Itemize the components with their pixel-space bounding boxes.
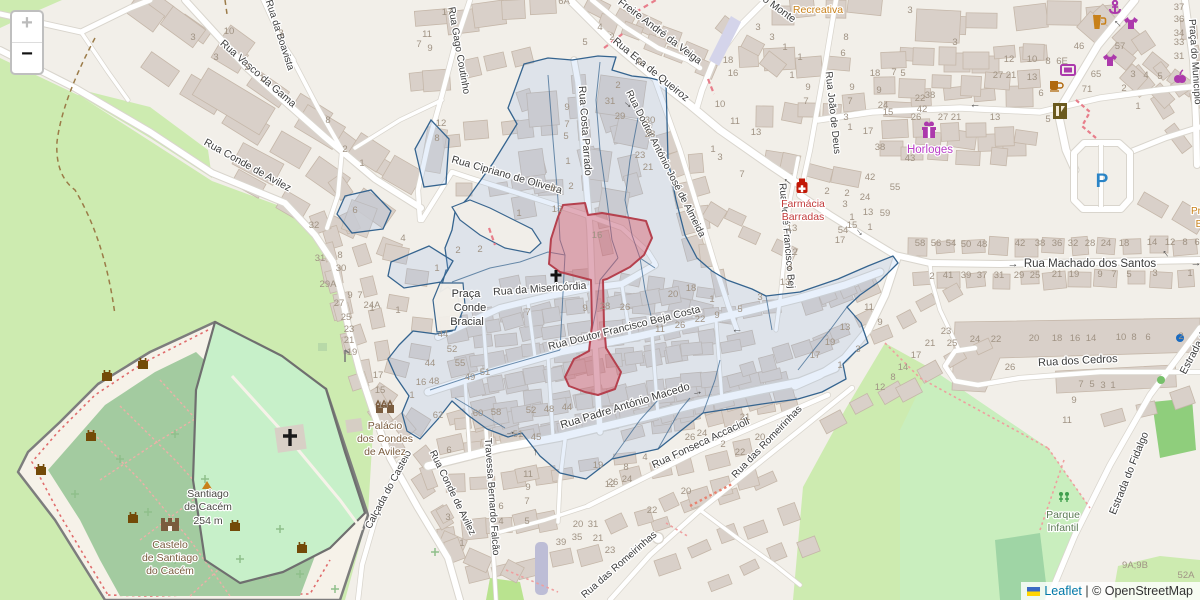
svg-text:Recreativa: Recreativa (793, 4, 843, 16)
svg-text:Bracial: Bracial (450, 316, 484, 328)
svg-text:31: 31 (588, 519, 599, 530)
svg-text:1: 1 (837, 360, 842, 371)
svg-text:44: 44 (425, 358, 436, 369)
svg-text:2: 2 (244, 62, 249, 73)
svg-text:29: 29 (1014, 270, 1025, 281)
svg-text:Conde: Conde (454, 302, 486, 314)
svg-text:1: 1 (797, 52, 802, 63)
svg-text:27: 27 (993, 70, 1004, 81)
svg-text:11: 11 (1062, 415, 1072, 426)
svg-text:17: 17 (863, 126, 874, 137)
svg-text:1: 1 (359, 158, 364, 169)
svg-text:16: 16 (1070, 333, 1081, 344)
svg-text:54: 54 (838, 225, 849, 236)
svg-text:17: 17 (911, 350, 922, 361)
svg-text:19: 19 (347, 347, 358, 358)
svg-text:21: 21 (925, 338, 936, 349)
svg-text:2: 2 (1178, 331, 1183, 342)
svg-text:27: 27 (334, 298, 345, 309)
svg-text:7: 7 (803, 96, 808, 107)
svg-text:16: 16 (728, 68, 739, 79)
svg-text:9: 9 (849, 82, 854, 93)
svg-text:13: 13 (751, 127, 762, 138)
svg-text:1: 1 (409, 390, 414, 401)
svg-text:2: 2 (568, 181, 573, 192)
svg-text:16: 16 (592, 230, 603, 241)
svg-text:31: 31 (315, 253, 326, 264)
svg-text:8: 8 (337, 250, 342, 261)
svg-text:3: 3 (1130, 69, 1135, 80)
svg-text:25: 25 (947, 338, 958, 349)
svg-text:1: 1 (395, 305, 400, 316)
svg-text:9A;9B: 9A;9B (1122, 560, 1148, 571)
svg-text:1: 1 (709, 294, 714, 305)
svg-text:52: 52 (447, 344, 458, 355)
svg-text:10: 10 (715, 99, 726, 110)
svg-text:9: 9 (564, 102, 569, 113)
svg-text:23: 23 (605, 545, 616, 556)
svg-text:44: 44 (562, 402, 573, 413)
svg-text:52: 52 (526, 405, 537, 416)
svg-text:31: 31 (994, 270, 1005, 281)
svg-text:1: 1 (516, 208, 521, 219)
svg-text:49: 49 (465, 372, 476, 383)
svg-text:9: 9 (876, 85, 881, 96)
svg-text:37: 37 (977, 270, 988, 281)
svg-text:24: 24 (622, 474, 633, 485)
svg-text:24: 24 (697, 428, 708, 439)
svg-text:36: 36 (1174, 14, 1185, 25)
svg-text:7: 7 (1111, 269, 1116, 280)
svg-text:54: 54 (946, 238, 957, 249)
svg-text:24: 24 (1101, 238, 1112, 249)
svg-text:2: 2 (720, 439, 725, 450)
svg-text:23: 23 (635, 150, 646, 161)
svg-text:35: 35 (572, 532, 583, 543)
svg-text:→: → (970, 101, 981, 113)
svg-text:2: 2 (609, 32, 614, 43)
svg-text:4: 4 (597, 22, 602, 33)
svg-text:26: 26 (685, 432, 696, 443)
svg-text:50: 50 (961, 239, 972, 250)
svg-text:13: 13 (378, 400, 389, 411)
svg-text:6: 6 (446, 445, 451, 456)
svg-text:39: 39 (961, 270, 972, 281)
svg-text:21: 21 (951, 112, 962, 123)
svg-text:2: 2 (477, 244, 482, 255)
svg-text:22: 22 (915, 93, 926, 104)
svg-text:1: 1 (847, 122, 852, 133)
svg-text:2: 2 (1121, 83, 1126, 94)
svg-text:5: 5 (524, 516, 529, 527)
svg-text:9: 9 (1097, 269, 1102, 280)
svg-text:Palácio: Palácio (368, 420, 403, 432)
svg-text:22: 22 (991, 334, 1002, 345)
svg-text:8: 8 (890, 372, 895, 383)
svg-text:3: 3 (842, 199, 847, 210)
svg-text:3: 3 (952, 37, 957, 48)
svg-text:48: 48 (544, 404, 555, 415)
svg-text:25: 25 (341, 312, 352, 323)
svg-text:55: 55 (890, 182, 901, 193)
svg-text:29: 29 (615, 111, 626, 122)
svg-text:58: 58 (491, 407, 502, 418)
svg-text:33: 33 (1174, 37, 1185, 48)
svg-text:3: 3 (1100, 380, 1105, 391)
svg-text:20: 20 (573, 519, 584, 530)
svg-text:3: 3 (769, 32, 774, 43)
svg-text:de Santiago: de Santiago (142, 552, 198, 564)
svg-text:3: 3 (717, 152, 722, 163)
svg-text:10: 10 (1027, 54, 1038, 65)
svg-text:51: 51 (513, 429, 524, 440)
svg-text:11: 11 (730, 116, 740, 127)
svg-text:9: 9 (1071, 395, 1076, 406)
svg-text:2: 2 (929, 271, 934, 282)
svg-text:58: 58 (915, 238, 926, 249)
svg-text:Farmácia: Farmácia (781, 198, 825, 210)
svg-text:Praça: Praça (452, 288, 482, 300)
svg-text:9: 9 (525, 482, 530, 493)
svg-text:23: 23 (344, 324, 355, 335)
svg-text:1: 1 (259, 73, 264, 84)
svg-text:Infantil: Infantil (1048, 522, 1079, 534)
svg-text:3: 3 (855, 344, 860, 355)
svg-text:3: 3 (907, 5, 912, 16)
svg-text:23: 23 (941, 326, 952, 337)
svg-text:12: 12 (436, 118, 447, 129)
svg-text:60: 60 (473, 408, 484, 419)
svg-text:21: 21 (1006, 70, 1017, 81)
svg-text:6: 6 (1194, 237, 1199, 248)
svg-text:18: 18 (870, 68, 881, 79)
svg-text:2: 2 (455, 245, 460, 256)
svg-text:8: 8 (325, 115, 330, 126)
svg-text:1: 1 (565, 156, 570, 167)
svg-text:38: 38 (925, 90, 936, 101)
svg-text:254 m: 254 m (193, 515, 222, 527)
svg-text:do Cacém: do Cacém (146, 565, 194, 577)
svg-text:6: 6 (498, 501, 503, 512)
svg-text:7: 7 (525, 307, 530, 318)
svg-text:→: → (732, 326, 743, 338)
svg-text:21: 21 (1052, 269, 1063, 280)
svg-text:7: 7 (564, 119, 569, 130)
svg-text:20: 20 (681, 486, 692, 497)
svg-text:6E: 6E (1056, 56, 1068, 67)
svg-text:1: 1 (434, 263, 439, 274)
svg-text:5: 5 (737, 304, 742, 315)
svg-text:30: 30 (336, 263, 347, 274)
svg-text:5: 5 (900, 68, 905, 79)
svg-text:18: 18 (686, 283, 697, 294)
svg-text:11: 11 (864, 302, 874, 313)
svg-text:8: 8 (434, 133, 439, 144)
svg-text:62: 62 (433, 410, 444, 421)
svg-text:19: 19 (1069, 269, 1080, 280)
svg-text:6: 6 (1145, 332, 1150, 343)
svg-text:2: 2 (792, 247, 797, 258)
svg-text:71: 71 (1082, 84, 1093, 95)
svg-text:25: 25 (1030, 270, 1041, 281)
svg-text:de Avilez: de Avilez (364, 446, 406, 458)
svg-text:de Cacém: de Cacém (184, 501, 232, 513)
svg-text:24: 24 (970, 334, 981, 345)
svg-text:8: 8 (623, 462, 628, 473)
svg-text:2: 2 (342, 144, 347, 155)
svg-text:3: 3 (445, 512, 450, 523)
svg-text:12: 12 (605, 479, 616, 490)
svg-text:14: 14 (898, 362, 909, 373)
svg-text:1: 1 (459, 538, 464, 549)
svg-text:21: 21 (593, 533, 604, 544)
svg-text:7: 7 (891, 67, 896, 78)
svg-text:57: 57 (1115, 41, 1126, 52)
svg-text:Parque: Parque (1046, 509, 1080, 521)
svg-text:30: 30 (645, 115, 656, 126)
svg-text:13: 13 (990, 112, 1001, 123)
svg-text:12: 12 (1165, 237, 1176, 248)
svg-text:42: 42 (865, 172, 876, 183)
svg-text:8: 8 (1045, 56, 1050, 67)
svg-text:17: 17 (442, 7, 453, 18)
svg-text:1: 1 (849, 212, 854, 223)
svg-text:28: 28 (645, 129, 656, 140)
svg-text:22: 22 (695, 314, 706, 325)
svg-text:10: 10 (224, 26, 235, 37)
svg-text:12: 12 (1004, 54, 1015, 65)
svg-text:3: 3 (190, 32, 195, 43)
svg-text:B: B (1196, 219, 1200, 230)
svg-text:44: 44 (438, 329, 449, 340)
svg-text:31: 31 (1174, 51, 1185, 62)
svg-text:4: 4 (400, 233, 405, 244)
svg-text:9: 9 (347, 290, 352, 301)
svg-text:24: 24 (860, 192, 871, 203)
svg-text:4: 4 (1143, 70, 1148, 81)
svg-text:9: 9 (427, 43, 432, 54)
svg-text:7: 7 (524, 496, 529, 507)
svg-text:48: 48 (429, 376, 440, 387)
svg-text:14: 14 (1147, 237, 1158, 248)
svg-text:32: 32 (309, 220, 320, 231)
svg-text:59: 59 (880, 208, 891, 219)
svg-text:Barradas: Barradas (782, 211, 825, 223)
svg-text:Santiago: Santiago (187, 488, 229, 500)
svg-text:28: 28 (600, 301, 611, 312)
svg-text:1: 1 (1187, 268, 1192, 279)
svg-text:Castelo: Castelo (152, 539, 188, 551)
svg-text:31: 31 (605, 96, 616, 107)
svg-text:2: 2 (824, 186, 829, 197)
svg-text:22: 22 (647, 505, 658, 516)
svg-text:15: 15 (375, 385, 386, 396)
svg-text:18: 18 (723, 55, 734, 66)
svg-text:13: 13 (863, 207, 874, 218)
svg-text:1: 1 (867, 222, 872, 233)
svg-text:51: 51 (480, 367, 491, 378)
svg-text:36: 36 (1052, 238, 1063, 249)
svg-text:42: 42 (917, 104, 928, 115)
svg-text:8: 8 (1182, 237, 1187, 248)
svg-text:41: 41 (943, 270, 954, 281)
svg-text:7: 7 (357, 290, 362, 301)
svg-text:21: 21 (344, 335, 355, 346)
svg-text:32: 32 (1068, 238, 1079, 249)
svg-text:52A: 52A (1178, 570, 1196, 581)
svg-text:3: 3 (755, 22, 760, 33)
svg-text:7: 7 (847, 96, 852, 107)
svg-text:→: → (528, 447, 540, 458)
svg-text:11: 11 (523, 469, 533, 480)
svg-text:1: 1 (710, 144, 715, 155)
svg-text:27: 27 (938, 112, 949, 123)
svg-text:9: 9 (877, 317, 882, 328)
svg-text:9: 9 (805, 82, 810, 93)
svg-text:43: 43 (905, 153, 916, 164)
svg-text:6: 6 (840, 48, 845, 59)
svg-text:17: 17 (810, 350, 821, 361)
svg-text:5: 5 (1126, 269, 1131, 280)
svg-text:13: 13 (780, 277, 791, 288)
svg-text:4: 4 (787, 262, 792, 273)
svg-text:9: 9 (714, 310, 719, 321)
svg-text:29A: 29A (320, 279, 338, 290)
svg-text:38: 38 (1035, 238, 1046, 249)
svg-text:18: 18 (1119, 238, 1130, 249)
svg-text:21: 21 (740, 412, 751, 423)
svg-text:16: 16 (416, 377, 427, 388)
svg-text:20: 20 (668, 289, 679, 300)
svg-text:5: 5 (1089, 379, 1094, 390)
svg-text:28: 28 (1085, 238, 1096, 249)
svg-text:21: 21 (643, 162, 654, 173)
svg-text:5: 5 (1157, 71, 1162, 82)
svg-text:19: 19 (825, 337, 836, 348)
svg-text:19: 19 (593, 460, 604, 471)
svg-text:48: 48 (977, 239, 988, 250)
svg-text:42: 42 (1015, 238, 1026, 249)
svg-text:9: 9 (582, 303, 587, 314)
svg-text:dos Condes: dos Condes (357, 433, 413, 445)
svg-text:15: 15 (883, 107, 894, 118)
svg-text:13: 13 (787, 223, 798, 234)
svg-text:7: 7 (416, 39, 421, 50)
svg-text:22: 22 (735, 447, 746, 458)
svg-text:6: 6 (1038, 88, 1043, 99)
svg-text:3: 3 (1152, 268, 1157, 279)
svg-text:Pr: Pr (1191, 206, 1200, 217)
svg-text:P: P (1096, 171, 1109, 192)
svg-text:8: 8 (843, 32, 848, 43)
svg-text:37: 37 (1174, 2, 1185, 13)
svg-text:11: 11 (655, 324, 665, 335)
svg-text:1: 1 (782, 42, 787, 53)
svg-text:18: 18 (1052, 333, 1063, 344)
svg-text:4: 4 (642, 452, 647, 463)
svg-text:12: 12 (875, 382, 886, 393)
svg-text:5: 5 (563, 131, 568, 142)
svg-text:3: 3 (757, 292, 762, 303)
svg-text:1: 1 (1110, 380, 1115, 391)
svg-text:13: 13 (840, 322, 851, 333)
svg-text:6: 6 (352, 205, 357, 216)
svg-text:65: 65 (1091, 69, 1102, 80)
svg-text:20: 20 (1029, 333, 1040, 344)
svg-text:39: 39 (556, 537, 567, 548)
svg-text:→: → (1008, 258, 1019, 270)
svg-text:24A: 24A (364, 300, 382, 311)
svg-text:38: 38 (875, 142, 886, 153)
svg-text:17: 17 (373, 370, 384, 381)
svg-text:20: 20 (755, 432, 766, 443)
svg-text:10: 10 (1116, 332, 1127, 343)
svg-text:46: 46 (1074, 41, 1085, 52)
svg-text:26: 26 (675, 320, 686, 331)
svg-text:14: 14 (1086, 333, 1097, 344)
svg-text:3: 3 (278, 28, 283, 39)
svg-text:Rua Machado dos Santos: Rua Machado dos Santos (1024, 258, 1157, 270)
svg-text:6: 6 (550, 183, 555, 194)
svg-text:45: 45 (531, 432, 542, 443)
svg-text:2: 2 (844, 188, 849, 199)
svg-text:5: 5 (582, 37, 587, 48)
svg-text:26: 26 (620, 302, 631, 313)
svg-text:7: 7 (1078, 379, 1083, 390)
svg-text:6: 6 (637, 57, 642, 68)
svg-text:7: 7 (739, 169, 744, 180)
svg-text:11: 11 (422, 29, 432, 40)
svg-text:6A: 6A (558, 0, 570, 7)
svg-text:17: 17 (835, 235, 846, 246)
svg-text:13: 13 (1027, 72, 1038, 83)
svg-text:2: 2 (615, 80, 620, 91)
svg-text:5: 5 (1045, 114, 1050, 125)
svg-text:55: 55 (455, 358, 466, 369)
svg-text:26: 26 (1005, 362, 1016, 373)
svg-text:1: 1 (789, 70, 794, 81)
svg-text:4: 4 (498, 516, 503, 527)
svg-text:1: 1 (1135, 101, 1140, 112)
svg-text:8: 8 (1131, 332, 1136, 343)
svg-text:3: 3 (213, 52, 218, 63)
svg-text:13: 13 (552, 204, 563, 215)
svg-text:56: 56 (931, 238, 942, 249)
